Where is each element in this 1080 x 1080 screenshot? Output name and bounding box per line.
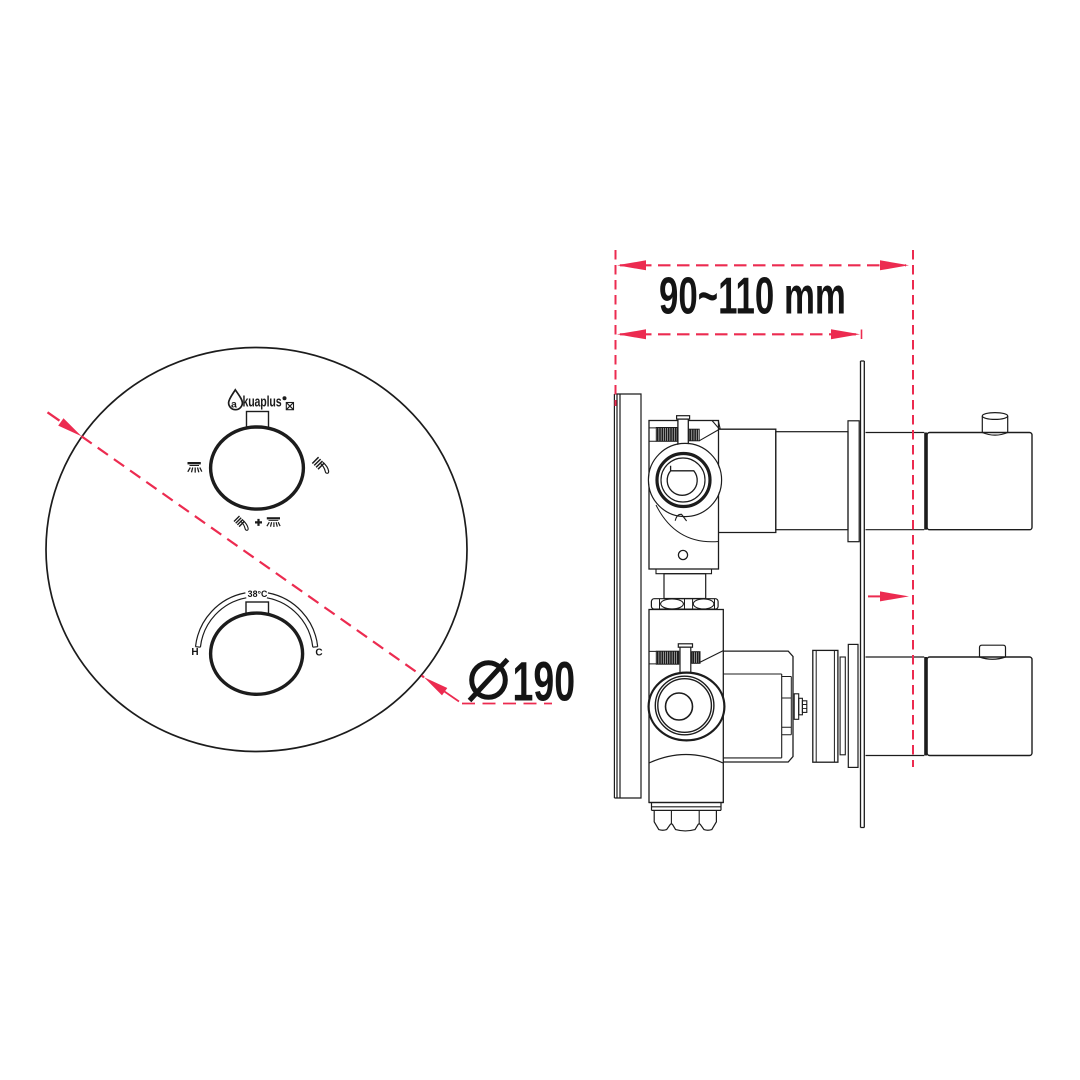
svg-text:kuaplus: kuaplus [243, 394, 282, 410]
svg-text:H: H [191, 647, 198, 658]
svg-text:C: C [315, 648, 322, 659]
svg-text:190: 190 [513, 651, 576, 713]
svg-text:38°C: 38°C [248, 589, 268, 599]
svg-text:90~110 mm: 90~110 mm [659, 268, 846, 326]
svg-text:a: a [231, 399, 237, 411]
